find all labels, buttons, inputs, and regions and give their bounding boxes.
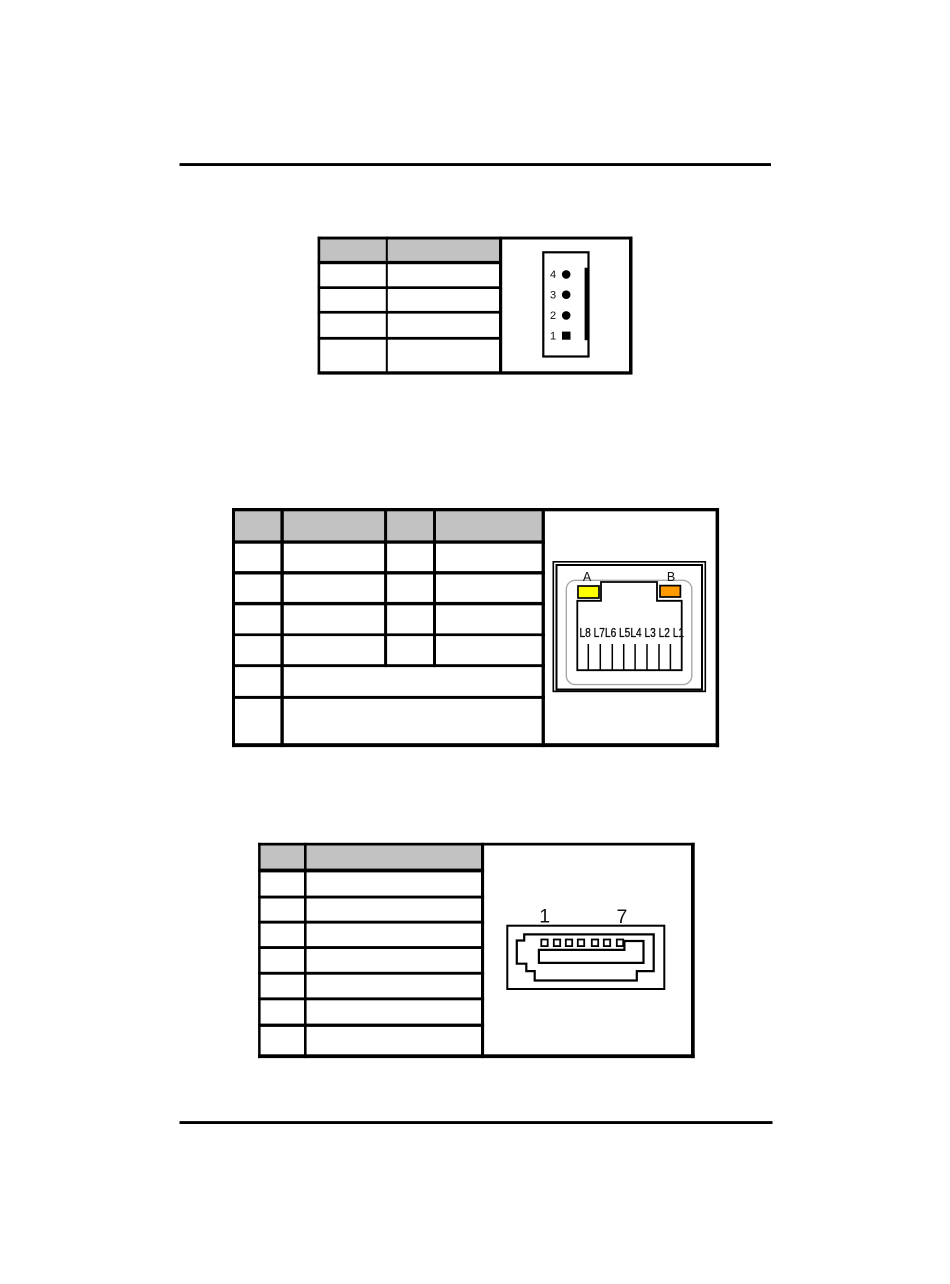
svg-text:A: A — [583, 570, 592, 584]
svg-text:3: 3 — [550, 290, 556, 302]
svg-text:4: 4 — [550, 269, 556, 281]
svg-text:1: 1 — [550, 330, 556, 342]
svg-text:B: B — [667, 570, 675, 584]
svg-text:1: 1 — [539, 906, 550, 928]
svg-text:L8 L7L6 L5L4 L3 L2 L1: L8 L7L6 L5L4 L3 L2 L1 — [580, 626, 685, 640]
svg-text:2: 2 — [550, 310, 556, 322]
